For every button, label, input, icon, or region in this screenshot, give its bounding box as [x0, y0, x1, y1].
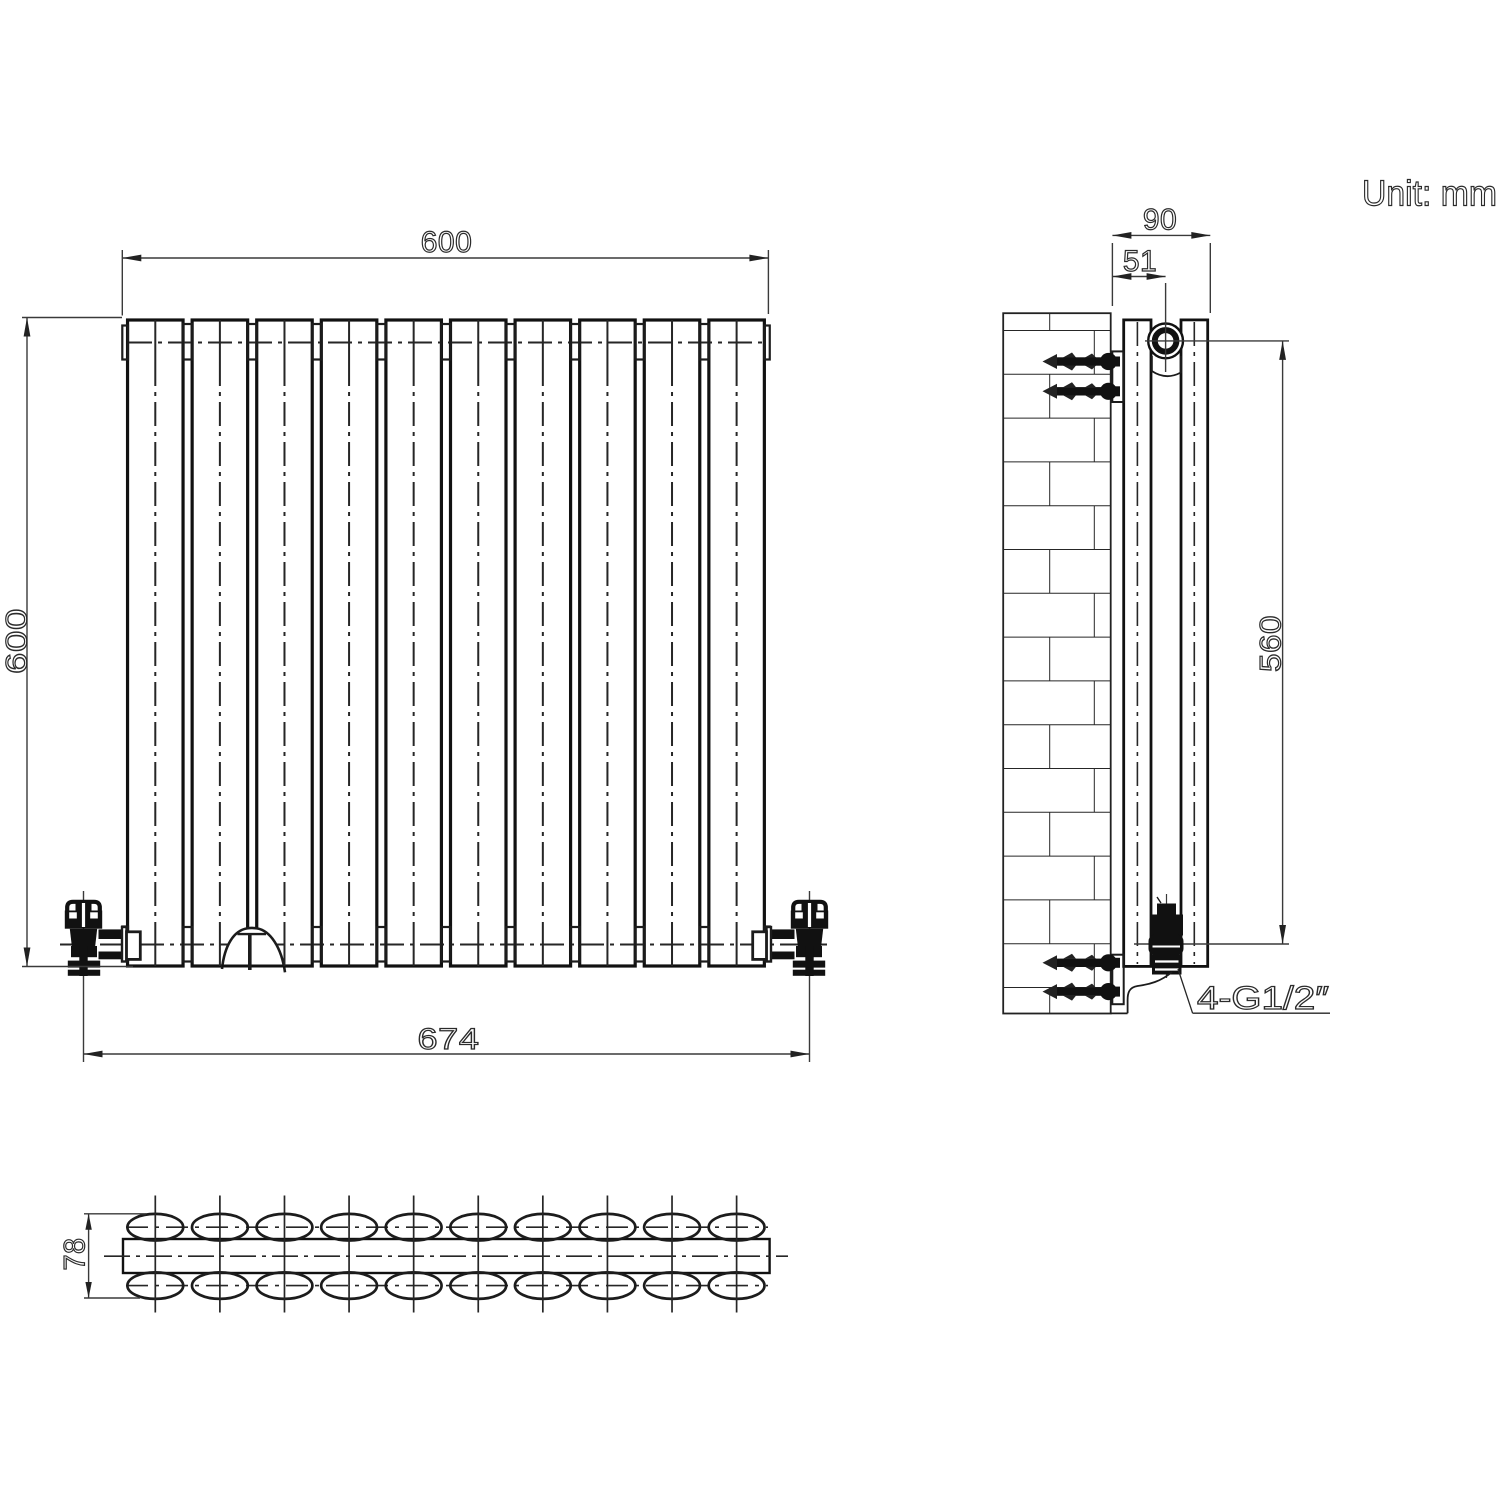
svg-text:78: 78	[59, 1238, 92, 1271]
svg-text:600: 600	[1, 608, 34, 674]
svg-text:560: 560	[1255, 615, 1288, 672]
svg-text:4-G1/2″: 4-G1/2″	[1197, 980, 1329, 1016]
svg-text:674: 674	[418, 1023, 480, 1056]
svg-text:Unit: mm: Unit: mm	[1362, 173, 1497, 214]
svg-text:600: 600	[421, 226, 473, 259]
svg-text:51: 51	[1123, 245, 1157, 278]
svg-text:90: 90	[1143, 204, 1177, 237]
